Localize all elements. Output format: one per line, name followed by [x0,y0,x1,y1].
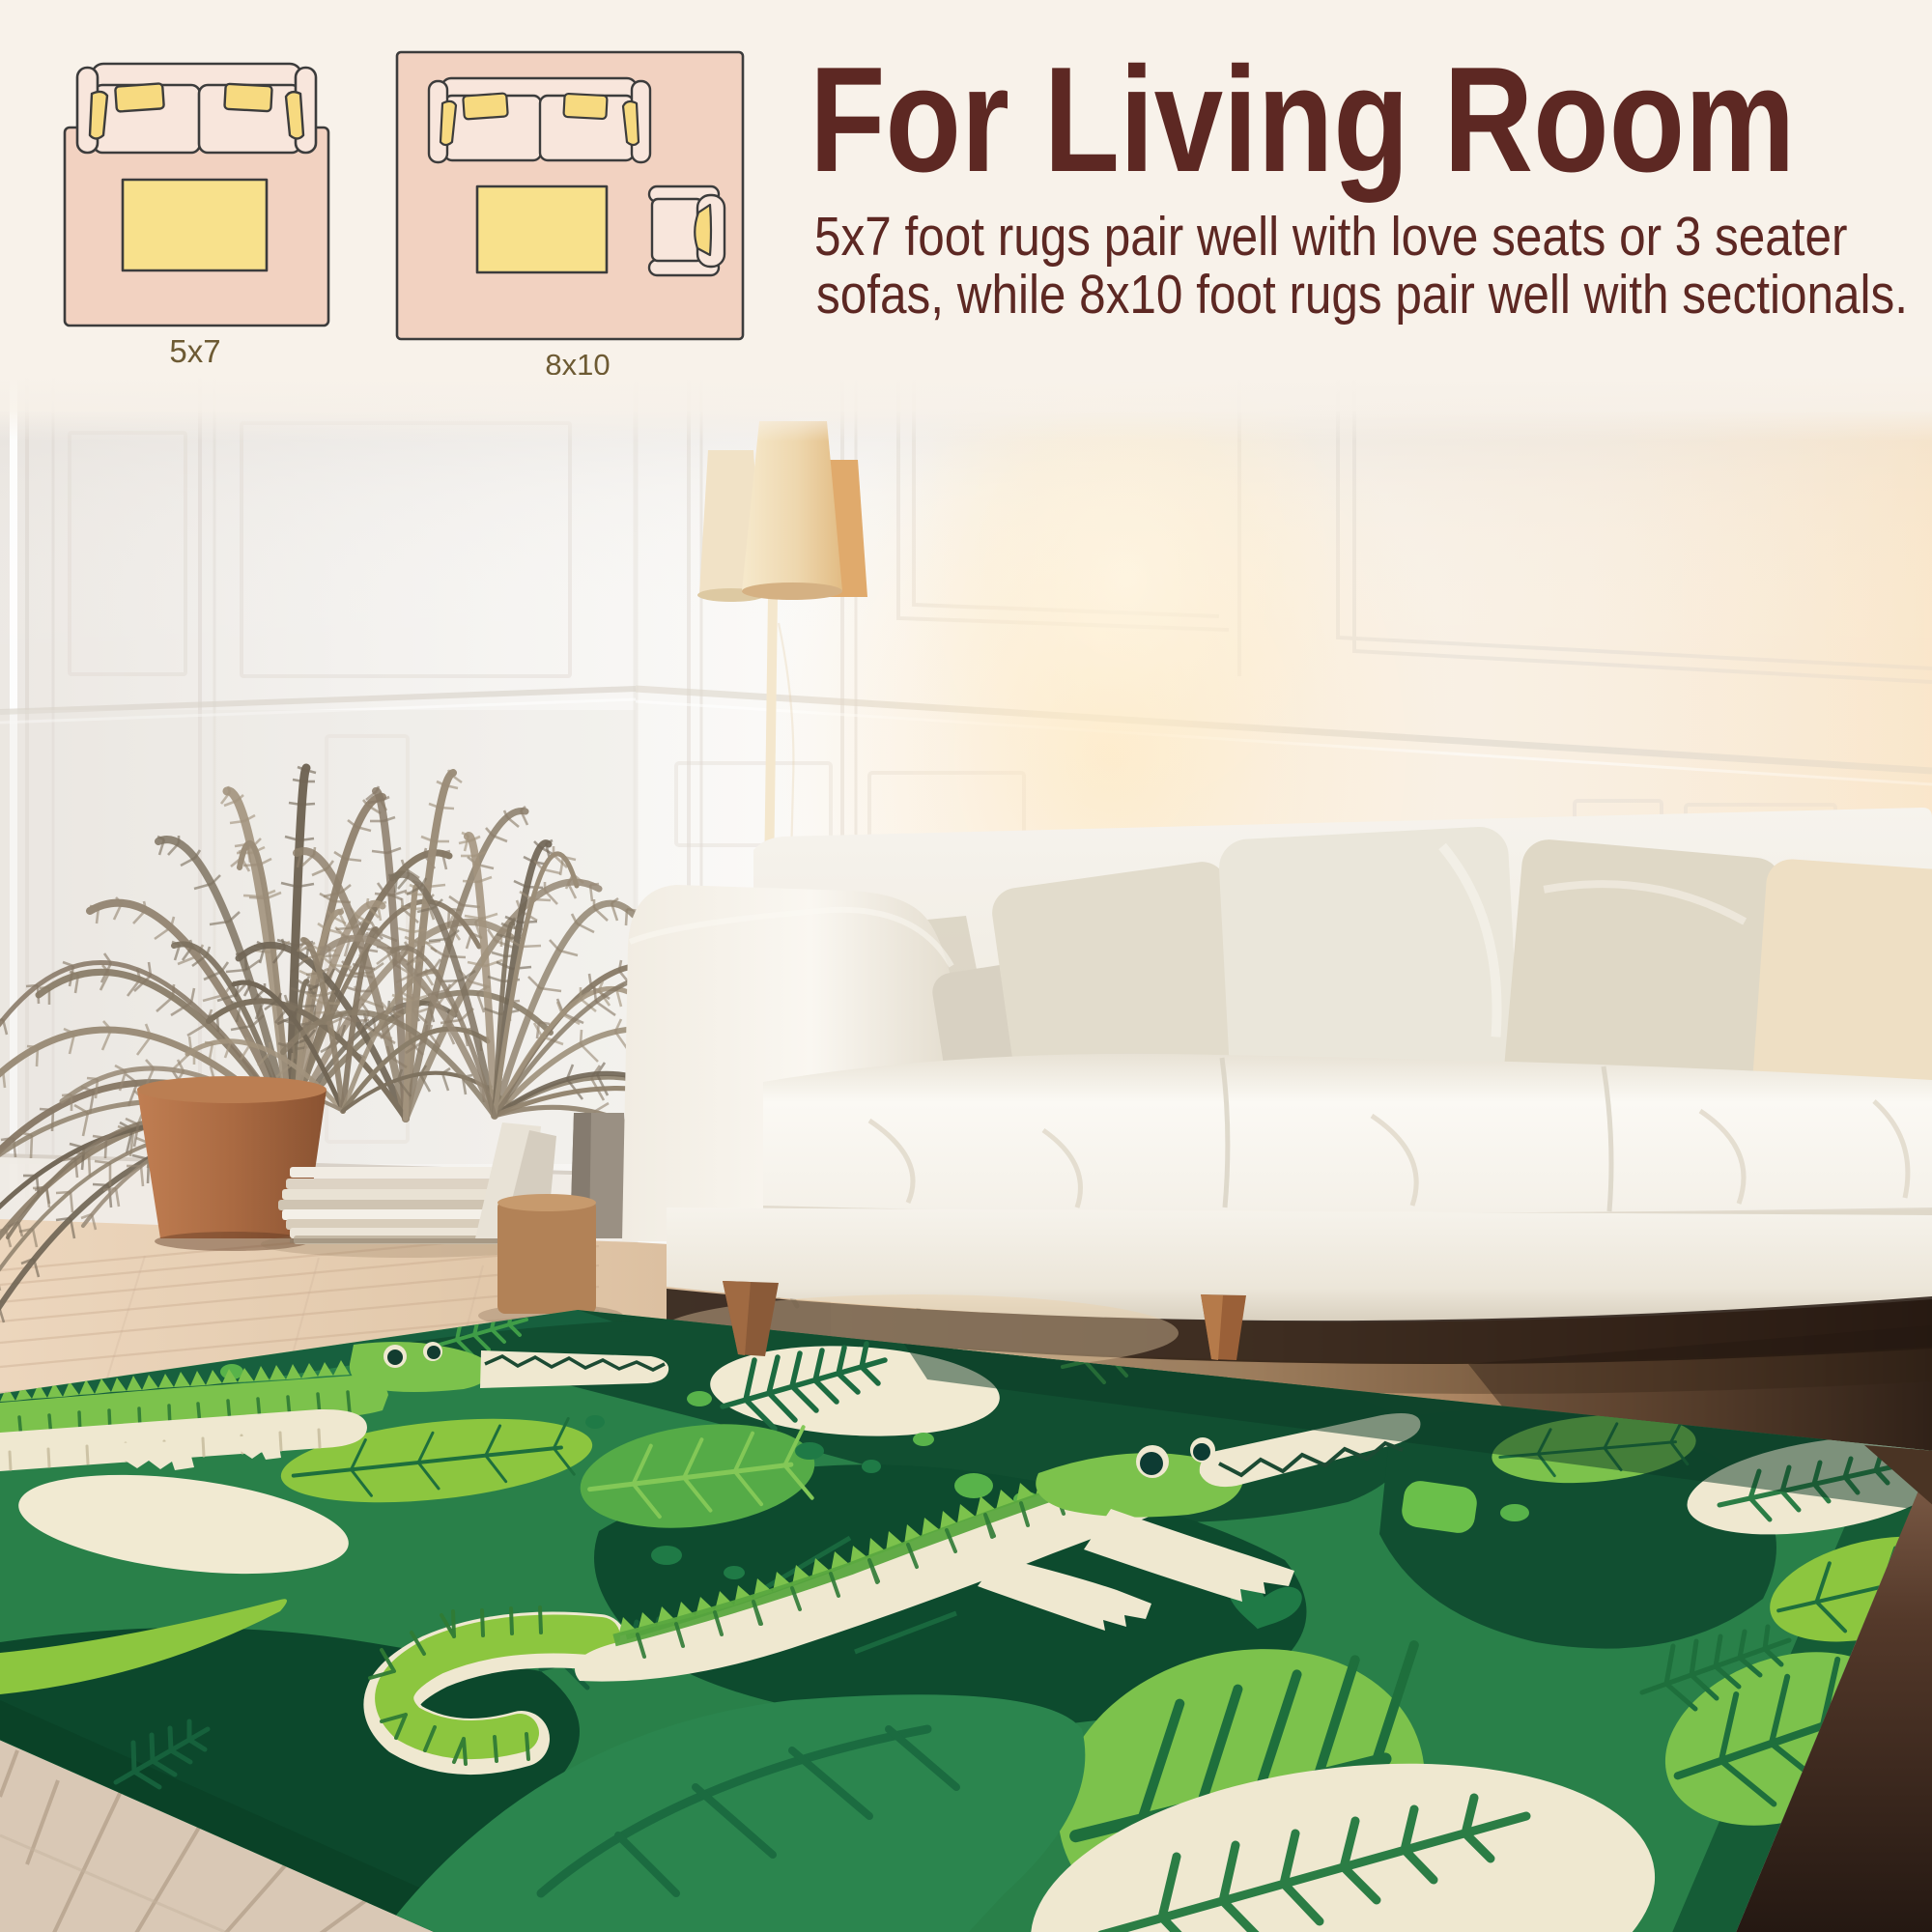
svg-text:5x7: 5x7 [169,333,220,369]
svg-text:5x7 foot rugs pair well with l: 5x7 foot rugs pair well with love seats … [814,207,1848,268]
svg-text:sofas, while 8x10 foot rugs pa: sofas, while 8x10 foot rugs pair well wi… [816,265,1908,326]
svg-text:For Living Room: For Living Room [810,37,1795,204]
